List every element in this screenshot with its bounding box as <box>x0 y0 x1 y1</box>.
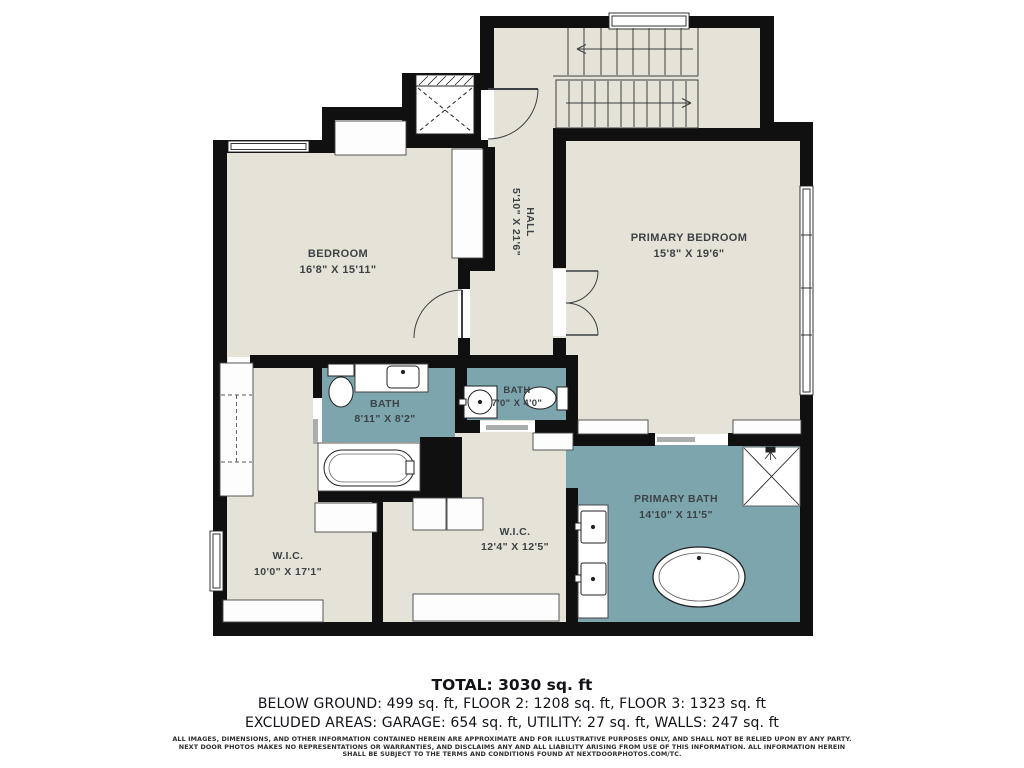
freestanding-tub <box>653 547 745 607</box>
label-primary-bath-dims: 14'10" X 11'5" <box>639 509 713 521</box>
total-area: TOTAL: 3030 sq. ft <box>0 676 1024 695</box>
label-primary-bedroom-dims: 15'8" X 19'6" <box>653 248 724 260</box>
toilet-tank <box>328 364 354 376</box>
wic-left-closet <box>220 363 253 496</box>
window-top <box>609 13 689 29</box>
wic-left-shelf-bottom <box>223 600 323 622</box>
sink-faucet-dot <box>401 370 404 373</box>
shower <box>743 447 800 506</box>
toilet-tank-2 <box>557 387 568 410</box>
dresser-right <box>733 420 801 434</box>
label-primary-bedroom: PRIMARY BEDROOM <box>631 232 748 244</box>
bedroom-closet <box>452 149 483 258</box>
floor-areas-line: BELOW GROUND: 499 sq. ft, FLOOR 2: 1208 … <box>0 695 1024 714</box>
pocket-door-primary-bath <box>657 437 695 442</box>
pocket-door-small-bath <box>486 425 528 430</box>
wic-right-shelf-a <box>413 498 446 530</box>
pocket-door-bath <box>313 419 318 444</box>
shower-head <box>766 447 775 452</box>
floor-plan-page: BEDROOM 16'8" X 15'11" HALL 5'10" X 21'6… <box>0 0 1024 768</box>
label-wic-left: W.I.C. <box>273 550 304 562</box>
dresser-left <box>578 420 648 434</box>
wic-right-shelf-b <box>447 498 483 530</box>
disclaimer-line-3: SHALL BE SUBJECT TO THE TERMS AND CONDIT… <box>0 751 1024 759</box>
bathtub <box>318 443 420 491</box>
label-wic-left-dims: 10'0" X 17'1" <box>254 566 322 578</box>
label-small-bath-dims: 7'0" X 4'0" <box>492 398 543 409</box>
elevator <box>416 75 474 134</box>
label-bath: BATH <box>370 398 400 410</box>
area-summary: TOTAL: 3030 sq. ft BELOW GROUND: 499 sq.… <box>0 676 1024 759</box>
toilet-bowl <box>329 377 353 407</box>
disclaimer: ALL IMAGES, DIMENSIONS, AND OTHER INFORM… <box>0 736 1024 759</box>
window-bedroom <box>228 141 309 152</box>
tub-faucet <box>406 461 414 474</box>
window-primary-bedroom <box>800 186 813 395</box>
wic-right-shelf-side <box>533 433 573 450</box>
floor-plan-drawing: BEDROOM 16'8" X 15'11" HALL 5'10" X 21'6… <box>0 0 1024 768</box>
label-wic-right: W.I.C. <box>500 526 531 538</box>
sink <box>387 366 419 388</box>
label-hall: HALL <box>524 207 536 237</box>
label-wic-right-dims: 12'4" X 12'5" <box>481 541 549 553</box>
label-bedroom-dims: 16'8" X 15'11" <box>300 264 377 276</box>
label-primary-bath: PRIMARY BATH <box>634 493 718 505</box>
excluded-areas-line: EXCLUDED AREAS: GARAGE: 654 sq. ft, UTIL… <box>0 714 1024 733</box>
bedroom-nook <box>335 121 406 155</box>
label-bath-dims: 8'11" X 8'2" <box>354 413 415 425</box>
label-hall-dims: 5'10" X 21'6" <box>510 188 522 256</box>
label-bedroom: BEDROOM <box>308 248 368 260</box>
wic-left-shelf-top <box>315 503 377 532</box>
wic-right-shelf-bottom <box>413 594 559 621</box>
window-wic <box>210 531 223 591</box>
label-small-bath: BATH <box>503 385 530 396</box>
